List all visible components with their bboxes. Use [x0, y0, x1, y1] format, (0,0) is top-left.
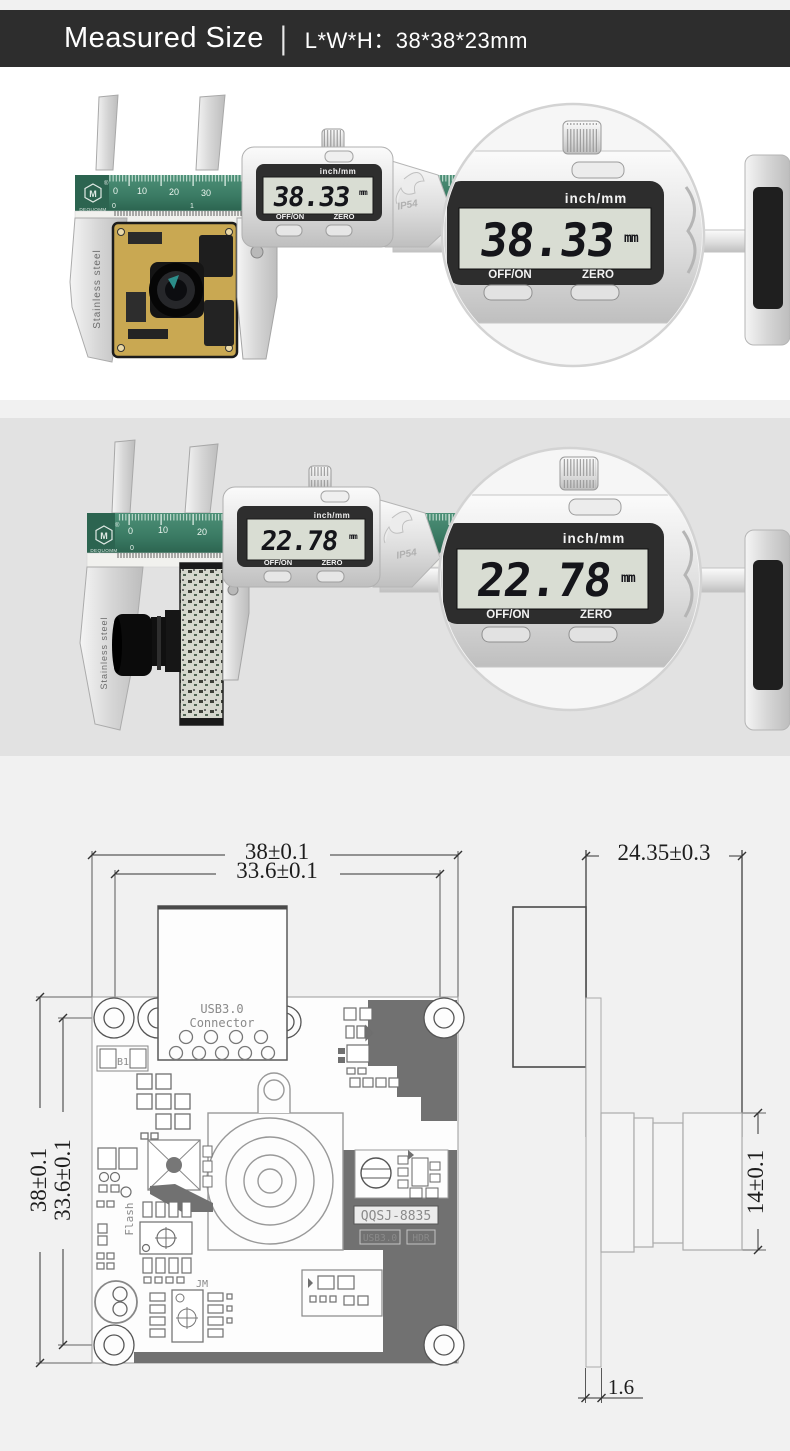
magnifier-reading: 22.78 — [474, 553, 614, 607]
off-on-button — [264, 571, 291, 582]
component-cluster-bottom-right — [302, 1270, 382, 1316]
caliper-width-photo: 0 10 20 30 0 1 M ® DEQUOMM Stainless ste… — [0, 67, 790, 400]
copper-bottom-bar — [134, 1352, 420, 1363]
header-banner: Measured Size | L*W*H：38*38*23mm — [0, 10, 790, 67]
component-dual-hole — [95, 1281, 137, 1323]
registered-mark: ® — [104, 180, 109, 187]
connector-label-2: Connector — [189, 1016, 254, 1030]
usb-tag: USB3.0 — [363, 1233, 398, 1244]
camera-module — [113, 223, 237, 357]
model-label: QQSJ-8835 — [361, 1209, 431, 1224]
ruler-number-10: 10 — [158, 525, 168, 535]
ruler-number-20: 20 — [169, 187, 179, 197]
size-spec: L*W*H：38*38*23mm — [305, 23, 528, 55]
zero-button — [326, 225, 352, 236]
registered-mark: ® — [115, 522, 120, 529]
logo-letter: M — [89, 189, 97, 199]
flash-label: Flash — [123, 1202, 136, 1235]
magnifier-content: inch/mm 38.33 mm OFF/ON ZERO — [445, 121, 710, 323]
lcd-reading: 22.78 — [259, 526, 339, 557]
side-lens-profile — [601, 1113, 742, 1252]
off-on-label: OFF/ON — [276, 212, 304, 221]
connector-label-1: USB3.0 — [200, 1002, 243, 1016]
caliper-display-unit: inch/mm 38.33 mm OFF/ON ZERO IP54 — [242, 129, 455, 247]
off-on-label: OFF/ON — [264, 558, 292, 567]
usb-connector: USB3.0 Connector — [158, 906, 287, 1060]
b1-label: B1 — [117, 1057, 129, 1068]
magnifier-reading: 38.33 — [477, 213, 617, 267]
inch-number-1: 1 — [190, 203, 194, 210]
magnifier-off-on: OFF/ON — [486, 609, 529, 621]
caliper-height-photo: 0 10 20 0 M ® DEQUOMM Stainless steel — [0, 418, 790, 756]
hdr-tag: HDR — [412, 1233, 429, 1244]
right-inset-components — [355, 1150, 448, 1198]
dim-height-inner: 33.6±0.1 — [50, 1139, 75, 1221]
front-view: USB3.0 Connector B1 — [92, 906, 464, 1365]
caliper-grip-end — [745, 155, 790, 345]
caliper-upper-jaws — [96, 95, 225, 170]
ruler-number-0: 0 — [128, 526, 133, 536]
inch-number-0: 0 — [130, 545, 134, 552]
dim-lens-height: 14±0.1 — [743, 1150, 768, 1214]
jm-label: JM — [196, 1279, 208, 1290]
ruler-number-20: 20 — [197, 527, 207, 537]
pcb-drawing: 38±0.1 33.6±0.1 38±0.1 33.6±0.1 24.35±0.… — [0, 756, 790, 1451]
zero-label: ZERO — [322, 558, 343, 567]
dimension-drawing: 38±0.1 33.6±0.1 38±0.1 33.6±0.1 24.35±0.… — [0, 756, 790, 1451]
title-divider: | — [280, 19, 287, 58]
lcd-unit: mm — [349, 532, 358, 541]
lcd-reading: 38.33 — [271, 182, 351, 213]
magnifier-zero: ZERO — [582, 269, 614, 281]
side-view — [513, 907, 742, 1367]
off-on-button — [276, 225, 302, 236]
lcd-unit: mm — [359, 188, 368, 197]
caliper-grip-end — [745, 530, 790, 730]
dim-board-thickness: 1.6 — [608, 1375, 634, 1399]
dim-height: 38±0.1 — [26, 1148, 51, 1212]
caliper-display-unit: inch/mm 22.78 mm OFF/ON ZERO IP54 — [223, 466, 440, 587]
magnifier-unit: mm — [624, 231, 639, 246]
zero-button — [317, 571, 344, 582]
magnifier-width: inch/mm 38.33 mm OFF/ON ZERO — [442, 104, 710, 366]
zero-label: ZERO — [334, 212, 355, 221]
photo-width-measurement: 0 10 20 30 0 1 M ® DEQUOMM Stainless ste… — [0, 67, 790, 400]
caliper-upper-jaws — [112, 440, 218, 513]
product-size-page: Measured Size | L*W*H：38*38*23mm 0 10 20… — [0, 0, 790, 1451]
top-button — [325, 151, 353, 162]
magnifier-zero: ZERO — [580, 609, 612, 621]
jaw-engraving: Stainless steel — [92, 249, 103, 328]
page-title: Measured Size — [64, 22, 264, 55]
jaw-engraving: Stainless steel — [99, 616, 109, 689]
magnifier-unit: mm — [621, 571, 636, 586]
logo-letter: M — [100, 531, 108, 541]
dim-depth: 24.35±0.3 — [617, 840, 710, 865]
ruler-number-0: 0 — [113, 186, 118, 196]
side-board — [586, 998, 601, 1367]
ruler-number-10: 10 — [137, 186, 147, 196]
inch-number-0: 0 — [112, 203, 116, 210]
ruler-number-30: 30 — [201, 188, 211, 198]
magnifier-mode-label: inch/mm — [563, 531, 626, 546]
brand-name: DEQUOMM — [90, 548, 117, 553]
mode-label: inch/mm — [320, 167, 356, 176]
photo-height-measurement: 0 10 20 0 M ® DEQUOMM Stainless steel — [0, 418, 790, 756]
side-usb-connector — [513, 907, 586, 1067]
top-button — [321, 491, 349, 502]
magnifier-height: inch/mm 22.78 mm OFF/ON ZERO — [439, 448, 706, 710]
dim-width-inner: 33.6±0.1 — [236, 858, 318, 883]
magnifier-mode-label: inch/mm — [565, 191, 628, 206]
magnifier-off-on: OFF/ON — [488, 269, 531, 281]
